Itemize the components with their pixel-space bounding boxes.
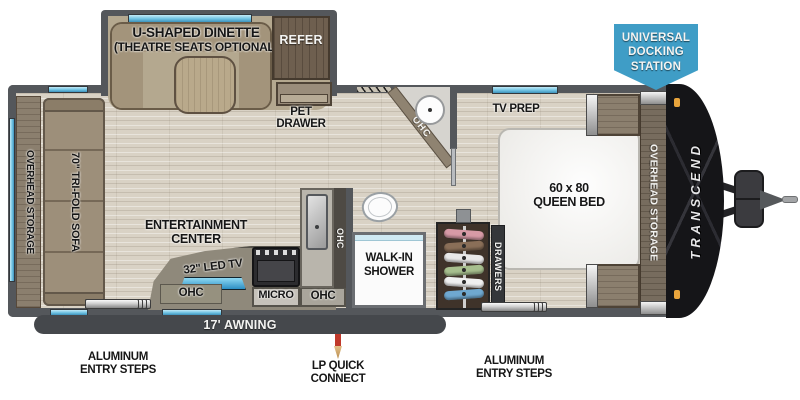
overhead-storage-bedroom: OVERHEAD STORAGE (640, 91, 667, 315)
bed-label-2: QUEEN BED (504, 196, 634, 209)
wardrobe (436, 222, 490, 310)
pet-drawer-front (280, 94, 328, 103)
ohc-sink-strip: OHC (334, 188, 346, 288)
marker-light-top (674, 98, 680, 107)
entry-steps-left-label-2: ENTRY STEPS (68, 364, 168, 376)
sofa-armrest-top (43, 98, 105, 112)
bath-sink-drain (428, 108, 432, 112)
trifold-sofa: 70" TRI-FOLD SOFA (43, 98, 105, 306)
entry-steps-right-label-2: ENTRY STEPS (464, 368, 564, 380)
brand-logo: TRANSCEND (688, 142, 703, 260)
lp-connect-label-1: LP QUICK (288, 360, 388, 372)
clothes-hanger (444, 277, 485, 289)
window-top-sofa (48, 86, 88, 93)
shower-label-1: WALK-IN (352, 252, 426, 264)
entry-steps-left (85, 299, 153, 349)
pet-drawer-label-2: DRAWER (271, 118, 331, 130)
floor-plan: U-SHAPED DINETTE (THEATRE SEATS OPTIONAL… (0, 0, 800, 400)
nightstand-bottom-chrome (586, 264, 598, 308)
kitchen-sink (306, 194, 328, 250)
bedroom-wall (450, 87, 457, 149)
overhead-bedroom-chrome-top (640, 91, 667, 105)
bedroom-window (492, 86, 558, 94)
ohc-sink-label: OHC (335, 228, 345, 249)
propane-divider (736, 198, 762, 200)
stove-knobs (256, 250, 296, 255)
clothes-hanger (444, 289, 485, 301)
stove-oven (257, 260, 295, 282)
shower-glass (355, 235, 423, 241)
lp-connect-nozzle (334, 346, 342, 359)
dinette-label: U-SHAPED DINETTE (106, 26, 286, 40)
kitchen-sink-drain (315, 225, 319, 229)
hanger-rack (441, 230, 487, 302)
ohc-micro-label: OHC (300, 290, 346, 302)
hitch-jack-rod (782, 196, 798, 203)
bed-label-1: 60 x 80 (504, 182, 634, 195)
clothes-hanger (444, 241, 485, 253)
drawers-label: DRAWERS (493, 242, 503, 292)
wardrobe-post (456, 209, 471, 223)
left-wall-window (9, 118, 15, 282)
awning-label: 17' AWNING (203, 318, 276, 332)
docking-banner-line2: DOCKING (614, 45, 698, 59)
overhead-bedroom-chrome-bottom (640, 301, 667, 315)
overhead-storage-bedroom-label: OVERHEAD STORAGE (648, 144, 660, 261)
marker-light-bottom (674, 290, 680, 299)
clothes-hanger (444, 229, 485, 241)
entertainment-label-2: CENTER (126, 233, 266, 246)
nightstand-top-chrome (586, 94, 598, 136)
pocket-door (451, 148, 456, 186)
refrigerator-label: REFER (272, 33, 330, 47)
entry-steps-right (481, 302, 549, 352)
docking-station-banner: UNIVERSAL DOCKING STATION (614, 24, 698, 90)
trifold-sofa-label: 70" TRI-FOLD SOFA (68, 152, 80, 252)
refrigerator (272, 16, 330, 80)
tv-prep-label: TV PREP (466, 103, 566, 115)
entry-steps-left-label-1: ALUMINUM (68, 351, 168, 363)
clothes-hanger (444, 253, 485, 265)
dinette-table (174, 56, 236, 114)
micro-label: MICRO (252, 290, 300, 302)
entry-steps-right-label-1: ALUMINUM (464, 355, 564, 367)
lp-connect-label-2: CONNECT (288, 373, 388, 385)
shower-label-2: SHOWER (352, 266, 426, 278)
overhead-storage-left-label: OVERHEAD STORAGE (23, 150, 34, 254)
docking-banner-line1: UNIVERSAL (614, 31, 698, 45)
dinette-window (128, 14, 252, 23)
lp-connect-stem (335, 334, 341, 347)
overhead-storage-left: OVERHEAD STORAGE (16, 96, 41, 308)
clothes-hanger (444, 265, 485, 277)
drawers-strip: DRAWERS (491, 225, 505, 309)
docking-banner-line3: STATION (614, 60, 698, 74)
front-cap: TRANSCEND (666, 84, 724, 318)
entertainment-label-1: ENTERTAINMENT (126, 219, 266, 232)
ohc-tv-label: OHC (160, 287, 222, 299)
pet-drawer-label-1: PET (271, 106, 331, 118)
dinette-sublabel: (THEATRE SEATS OPTIONAL) (96, 41, 296, 54)
